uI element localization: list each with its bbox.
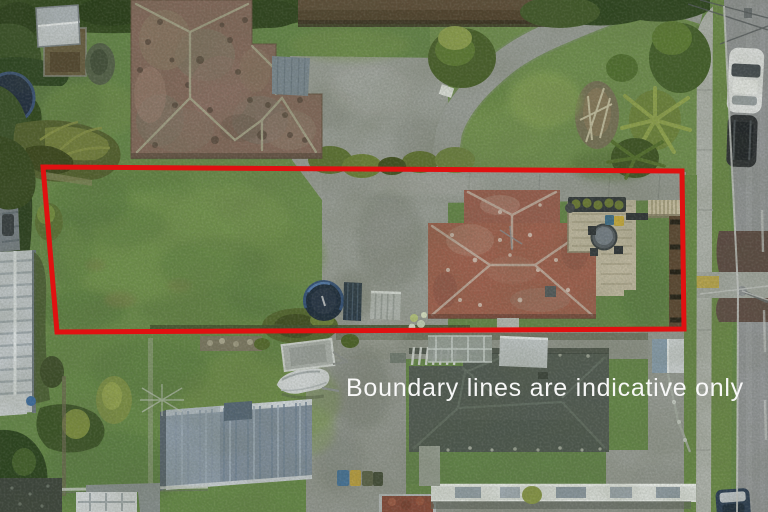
svg-text:Boundary lines are indicative: Boundary lines are indicative only <box>346 374 744 402</box>
